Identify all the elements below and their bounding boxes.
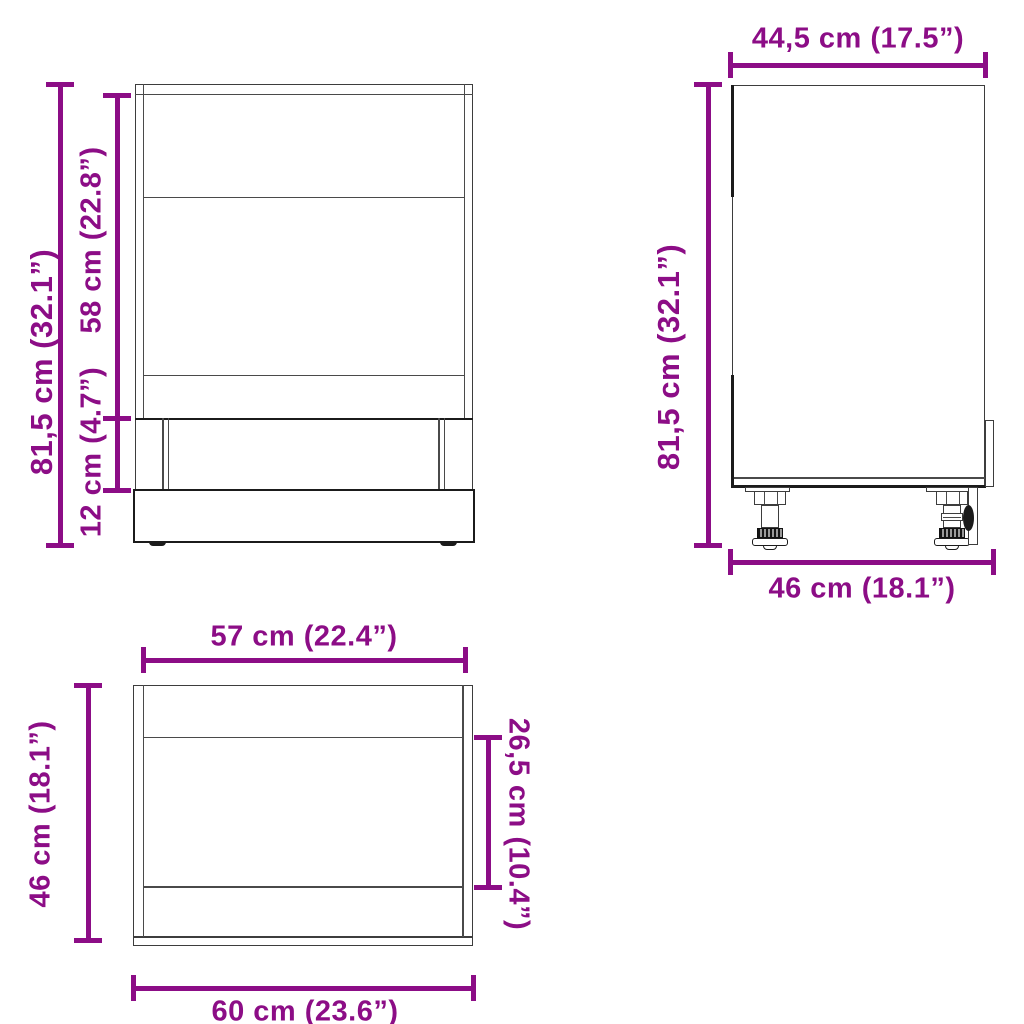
- dim-tick: [728, 549, 733, 575]
- side-depth-top-dim-line: [730, 63, 985, 68]
- side-front-edge-lower: [731, 375, 734, 487]
- dim-tick: [131, 975, 136, 1001]
- side-total-height-label: 81,5 cm (32.1”): [651, 244, 687, 470]
- dim-tick: [471, 975, 476, 1001]
- front-lower-divider-line: [143, 375, 465, 377]
- front-left-leg-line: [162, 418, 164, 490]
- dim-tick: [141, 647, 146, 673]
- dim-tick: [991, 549, 996, 575]
- foot-hex-facet-line: [764, 492, 765, 504]
- dimension-diagram: 81,5 cm (32.1”) 58 cm (22.8”) 12 cm (4.7…: [0, 0, 1024, 1024]
- foot-hex-facet-line: [777, 492, 778, 504]
- top-depth-label: 46 cm (18.1”): [25, 720, 58, 907]
- front-right-leg-line: [438, 418, 440, 490]
- top-inner-width-dim-line: [143, 658, 465, 663]
- foot-hex-facet-line: [946, 492, 947, 504]
- dim-tick: [983, 52, 988, 78]
- top-depth-dim-line: [86, 685, 91, 940]
- front-right-stile-line: [464, 84, 466, 418]
- foot-base-pad: [763, 545, 777, 550]
- top-inner-width-label: 57 cm (22.4”): [210, 621, 397, 654]
- front-niche-height-dim-line: [115, 95, 120, 418]
- side-bottom-board-line: [732, 477, 985, 479]
- top-carcass-outline: [133, 685, 473, 937]
- top-front-panel-strip: [133, 937, 473, 946]
- top-left-panel-line: [143, 685, 145, 937]
- dim-tick: [103, 93, 131, 98]
- dim-tick: [474, 735, 502, 740]
- foot-knurled-collar: [939, 528, 965, 538]
- front-total-height-label: 81,5 cm (32.1”): [24, 249, 60, 475]
- foot-adjuster-screw-line: [943, 517, 961, 519]
- dim-tick: [74, 938, 102, 943]
- front-right-leg-line: [444, 418, 446, 490]
- side-carcass-outline: [732, 85, 985, 487]
- foot-base-pad: [945, 545, 959, 550]
- front-carcass-outline: [135, 84, 473, 490]
- foot-hex-nut: [754, 491, 786, 505]
- dim-tick: [46, 543, 74, 548]
- front-upper-divider-line: [143, 197, 465, 199]
- front-left-stile-line: [143, 84, 145, 418]
- front-plinth-height-dim-line: [115, 418, 120, 490]
- dim-tick: [474, 885, 502, 890]
- side-depth-bottom-label: 46 cm (18.1”): [768, 573, 955, 606]
- side-front-edge-upper: [731, 85, 734, 197]
- side-front-panel-edge: [985, 420, 994, 487]
- top-back-rail-line: [143, 737, 463, 739]
- dim-tick: [694, 82, 722, 87]
- front-niche-height-label: 58 cm (22.8”): [76, 146, 109, 333]
- front-plinth-panel: [133, 489, 475, 543]
- foot-knurled-collar: [757, 528, 783, 538]
- side-total-height-dim-line: [706, 84, 711, 545]
- top-recess-label: 26,5 cm (10.4”): [502, 718, 535, 930]
- foot-hex-nut: [936, 491, 968, 505]
- front-plinth-height-label: 12 cm (4.7”): [76, 367, 109, 537]
- foot-adjuster-knob: [963, 505, 974, 531]
- dim-tick: [728, 52, 733, 78]
- side-depth-top-label: 44,5 cm (17.5”): [752, 23, 964, 56]
- front-bottom-shelf-line: [135, 418, 473, 420]
- top-recess-dim-line: [486, 737, 491, 887]
- top-front-rail-line: [143, 886, 463, 888]
- front-left-leg-line: [168, 418, 170, 490]
- dim-tick: [463, 647, 468, 673]
- foot-hex-facet-line: [959, 492, 960, 504]
- dim-tick: [694, 543, 722, 548]
- top-right-panel-line: [462, 685, 464, 937]
- foot-shaft: [761, 505, 779, 528]
- front-top-rail-line: [135, 94, 473, 96]
- side-depth-bottom-dim-line: [730, 560, 993, 565]
- top-outer-width-label: 60 cm (23.6”): [211, 996, 398, 1024]
- dim-tick: [46, 82, 74, 87]
- top-outer-width-dim-line: [133, 986, 473, 991]
- dim-tick: [74, 683, 102, 688]
